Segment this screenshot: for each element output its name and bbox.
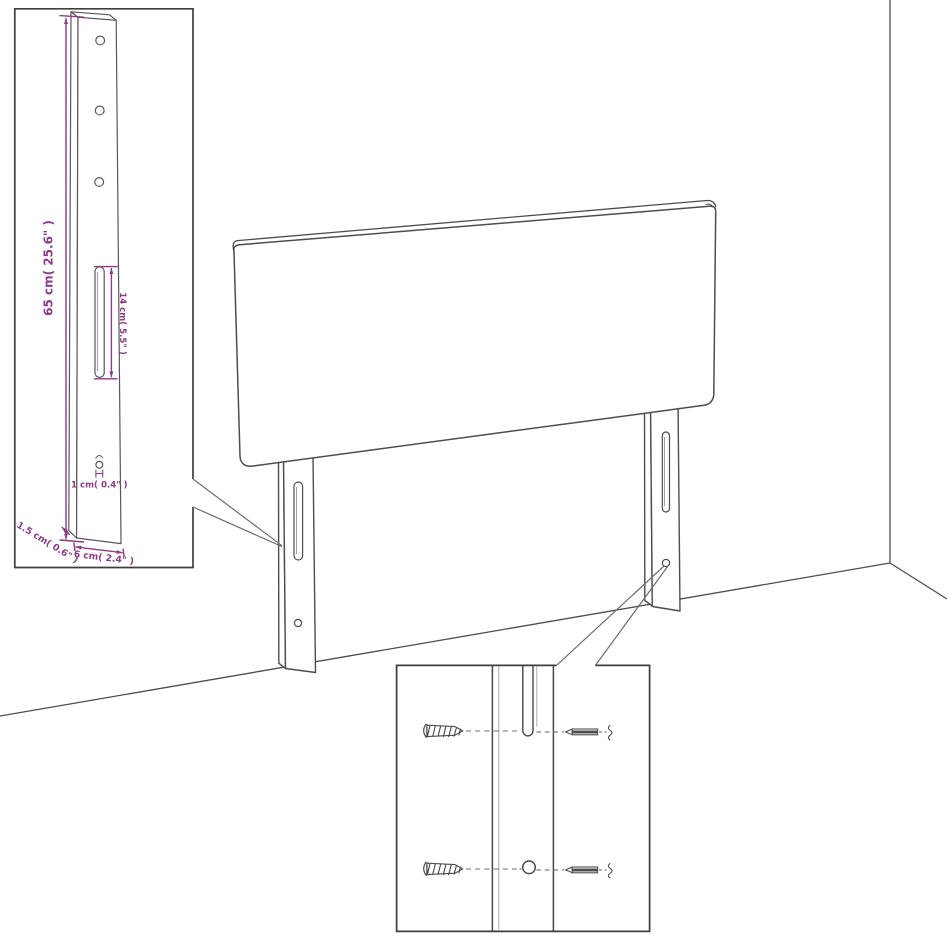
pointer-line-left	[557, 566, 665, 666]
headboard-front-face	[234, 206, 716, 466]
label-hole-diameter: 1 cm( 0.4" )	[71, 481, 128, 491]
floor-edge-right	[890, 563, 947, 599]
pointer-line-right	[595, 566, 667, 665]
product-diagram-headboard: 65 cm( 25.6" ) 14 cm( 5.5" ) 1 cm( 0.4" …	[0, 0, 947, 947]
label-slot-length: 14 cm( 5.5" )	[117, 292, 127, 355]
inset-leg-small-hole	[96, 461, 103, 468]
headboard-panel	[233, 201, 716, 467]
right-leg-hole	[662, 559, 669, 566]
left-leg-slot	[294, 482, 303, 560]
label-height: 65 cm( 25.6" )	[42, 220, 56, 316]
headboard-left-leg	[279, 455, 316, 673]
inset-leg-drawing	[69, 12, 121, 544]
strip-hole	[523, 861, 536, 874]
inset-leg-pointer-lines	[193, 479, 282, 547]
inset-leg-slot	[95, 267, 104, 378]
left-leg-hole	[294, 619, 301, 626]
diagram-canvas: 65 cm( 25.6" ) 14 cm( 5.5" ) 1 cm( 0.4" …	[0, 0, 947, 947]
right-leg-slot	[662, 432, 669, 512]
inset-screw-detail	[397, 566, 668, 932]
